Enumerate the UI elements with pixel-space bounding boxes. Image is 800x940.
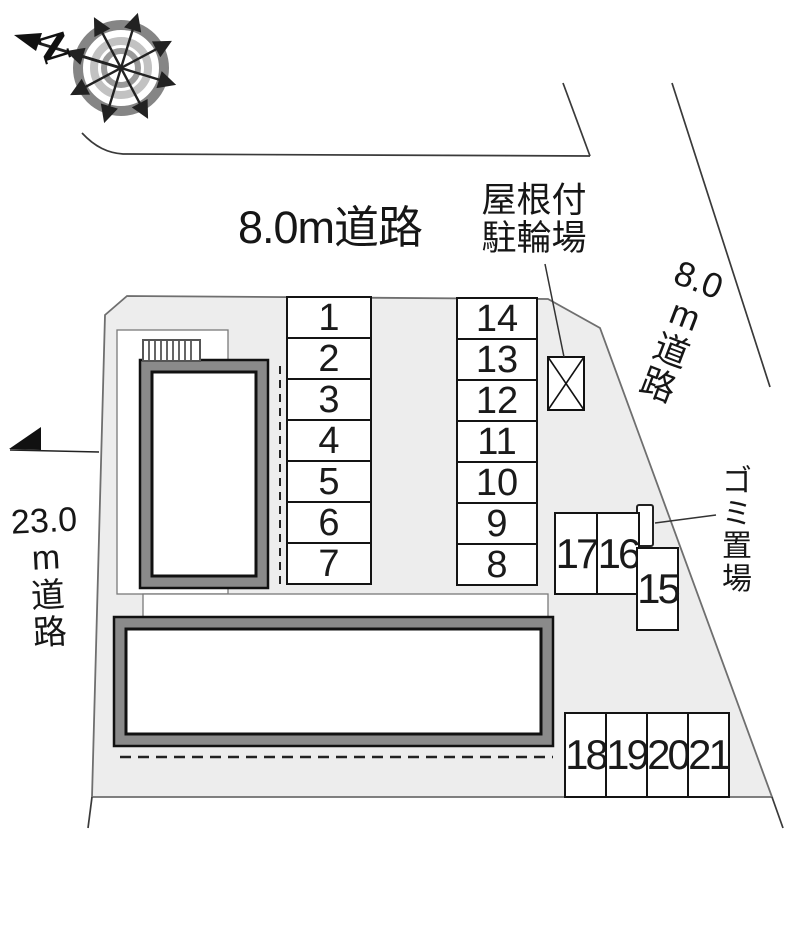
stairs-hatch-icon [143, 340, 200, 361]
parking-pair-17-16: 17 16 [554, 512, 640, 595]
parking-stall-4: 4 [286, 419, 372, 462]
site-plan-drawing: N [0, 0, 800, 940]
parking-stall-15: 15 [636, 547, 679, 631]
parking-stall-19: 19 [605, 712, 648, 798]
compass-rose-icon: N [14, 13, 176, 122]
parking-stall-12: 12 [456, 379, 538, 422]
bicycle-shed-label-line1: 屋根付 [467, 182, 601, 220]
left-road-label: 23.0 m 道 路 [0, 501, 94, 655]
parking-row-bottom: 18 19 20 21 [564, 712, 730, 798]
top-road-label: 8.0m道路 [218, 191, 442, 256]
garbage-place-label: ゴ ミ 置 場 [714, 466, 760, 597]
parking-stall-2: 2 [286, 337, 372, 380]
parking-stall-14: 14 [456, 297, 538, 340]
parking-stall-16: 16 [596, 512, 640, 595]
bicycle-shed-label-line2: 駐輪場 [467, 220, 601, 258]
parking-stall-10: 10 [456, 461, 538, 504]
parking-column-right: 14 13 12 11 10 9 8 [456, 297, 538, 586]
parking-stall-9: 9 [456, 502, 538, 545]
parking-stall-20: 20 [646, 712, 689, 798]
parking-stall-5: 5 [286, 460, 372, 503]
parking-stall-8: 8 [456, 543, 538, 586]
building-bottom [114, 617, 553, 746]
parking-stall-13: 13 [456, 338, 538, 381]
parking-stall-11: 11 [456, 420, 538, 463]
building-left [140, 360, 268, 588]
parking-stall-6: 6 [286, 501, 372, 544]
parking-stall-21: 21 [687, 712, 730, 798]
parking-stall-18: 18 [564, 712, 607, 798]
parking-column-left: 1 2 3 4 5 6 7 [286, 296, 372, 585]
site-plan: N 1 2 3 4 5 6 7 14 13 12 11 10 9 8 17 16… [0, 0, 800, 940]
north-label: N [30, 24, 80, 68]
left-road-arrow-icon [9, 427, 99, 452]
bicycle-shed-box-icon [548, 357, 584, 410]
parking-stall-3: 3 [286, 378, 372, 421]
parking-stall-17: 17 [554, 512, 598, 595]
bicycle-shed-label: 屋根付 駐輪場 [467, 182, 601, 258]
parking-stall-7: 7 [286, 542, 372, 585]
parking-stall-1: 1 [286, 296, 372, 339]
